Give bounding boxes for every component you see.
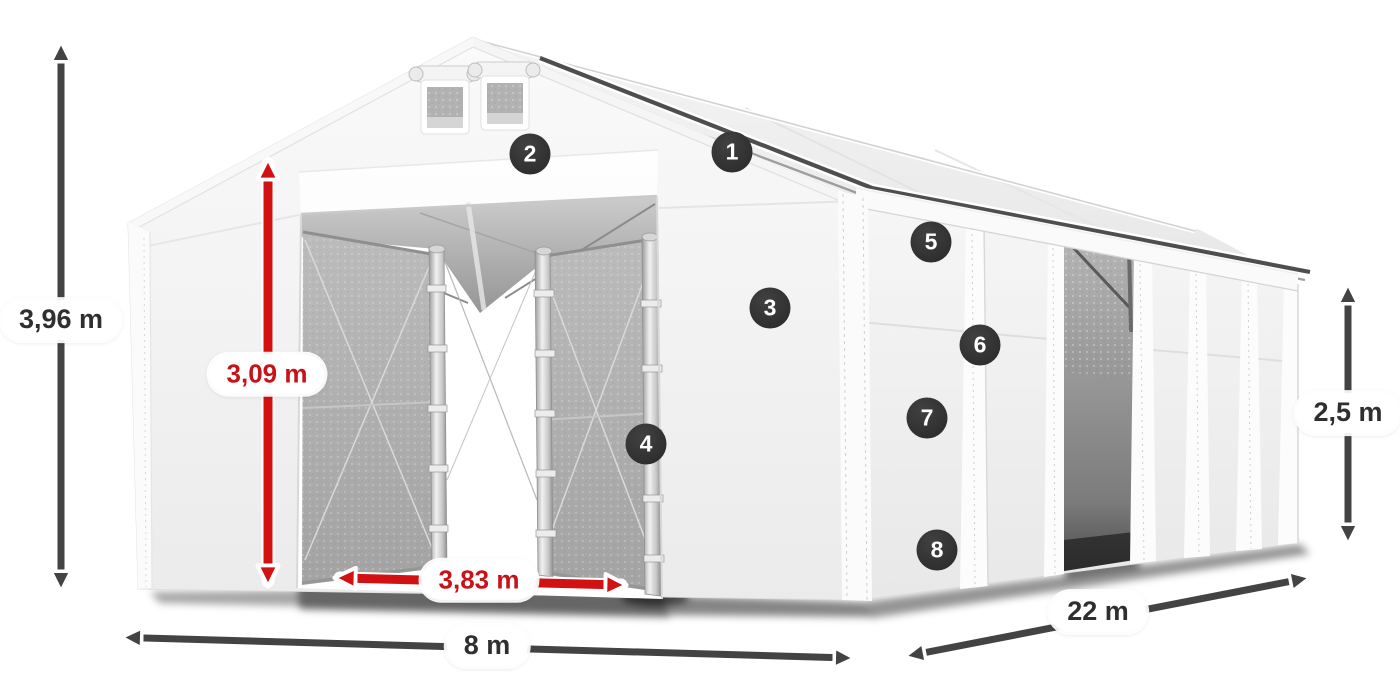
dimension-label-side-length: 22 m (1050, 592, 1146, 632)
feature-marker-4[interactable]: 4 (626, 424, 667, 465)
dimension-label-side-height: 2,5 m (1296, 393, 1399, 433)
feature-marker-2[interactable]: 2 (510, 134, 551, 175)
dimension-label-entrance-height: 3,09 m (210, 355, 325, 394)
feature-marker-7[interactable]: 7 (907, 398, 948, 439)
front-entrance (297, 196, 664, 599)
side-doorway (1064, 232, 1134, 571)
feature-marker-1[interactable]: 1 (712, 132, 753, 173)
tent-illustration (0, 0, 1400, 700)
feature-marker-5[interactable]: 5 (911, 222, 952, 263)
mesh-door-left (302, 232, 448, 585)
dimension-label-total-height: 3,96 m (2, 300, 120, 340)
feature-marker-6[interactable]: 6 (960, 325, 1001, 366)
tent-dimension-diagram: 3,96 m 3,09 m 3,83 m 8 m 22 m 2,5 m 1 2 … (0, 0, 1400, 700)
dimension-label-gable-width: 8 m (447, 626, 528, 666)
feature-marker-8[interactable]: 8 (917, 530, 958, 571)
dimension-label-entrance-width: 3,83 m (422, 561, 537, 600)
feature-marker-3[interactable]: 3 (750, 288, 791, 329)
mesh-door-right (534, 233, 664, 596)
